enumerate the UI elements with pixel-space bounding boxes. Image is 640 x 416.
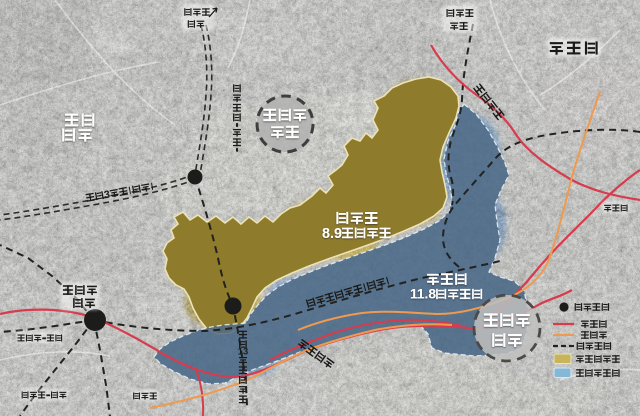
svg-text:11.8: 11.8 [410, 287, 436, 302]
svg-text:8.9: 8.9 [322, 226, 342, 242]
svg-text:13: 13 [238, 346, 248, 357]
